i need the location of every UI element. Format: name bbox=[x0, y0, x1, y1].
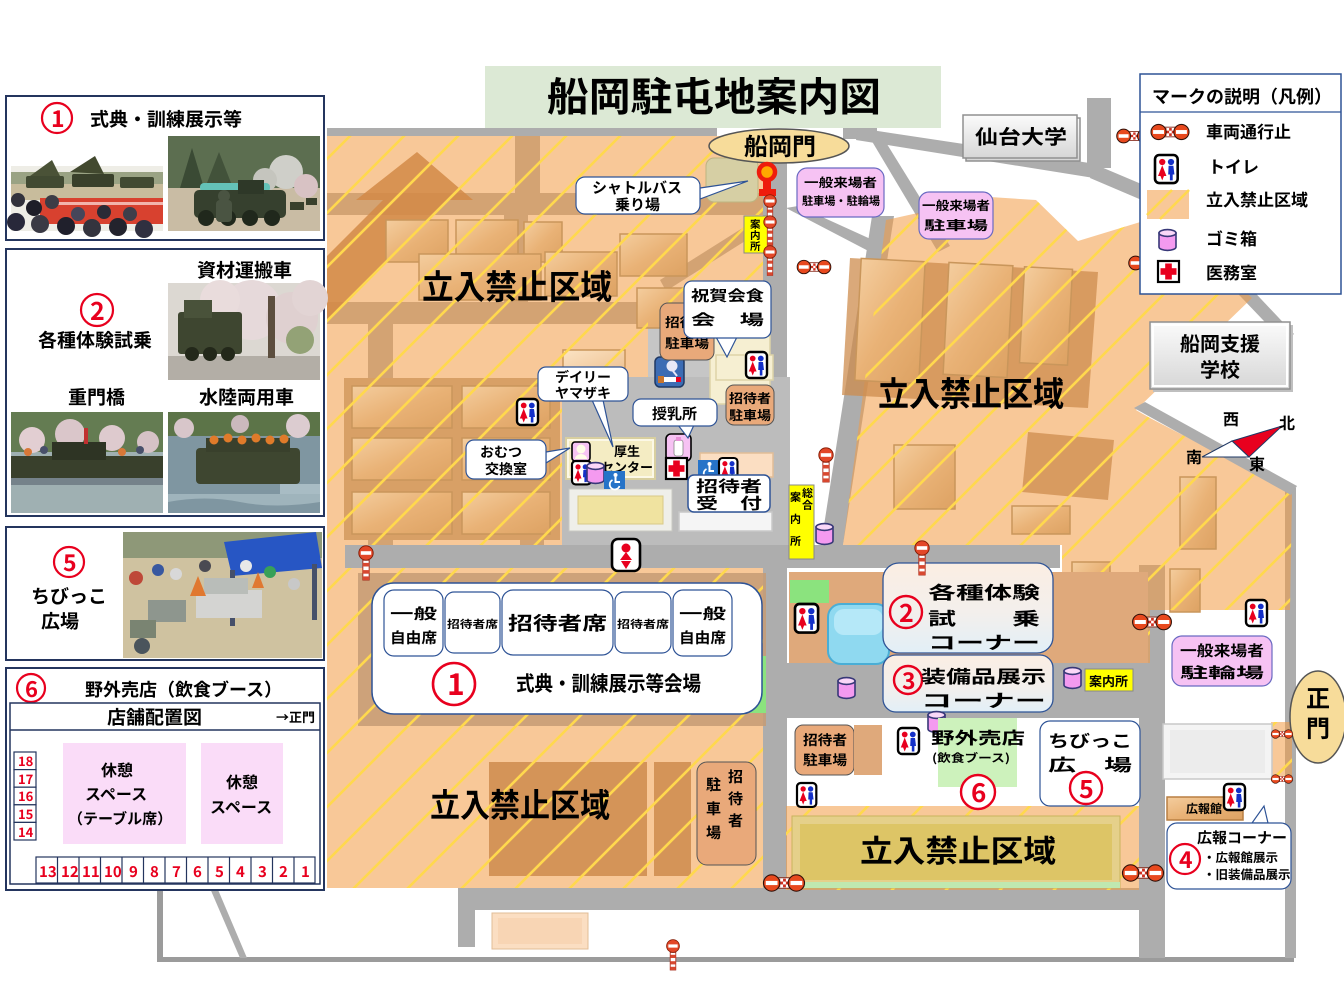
svg-text:15: 15 bbox=[18, 804, 33, 823]
svg-text:装備品展示: 装備品展示 bbox=[921, 663, 1046, 689]
svg-text:仙台大学: 仙台大学 bbox=[975, 121, 1067, 150]
svg-text:式典・訓練展示等: 式典・訓練展示等 bbox=[90, 105, 242, 132]
svg-text:2: 2 bbox=[90, 292, 105, 328]
svg-text:（テーブル席）: （テーブル席） bbox=[68, 808, 172, 829]
svg-text:自由席: 自由席 bbox=[679, 627, 726, 648]
svg-text:学校: 学校 bbox=[1200, 354, 1240, 383]
svg-text:休憩: 休憩 bbox=[101, 757, 133, 781]
svg-text:5: 5 bbox=[1079, 770, 1094, 806]
svg-text:立入禁止区域: 立入禁止区域 bbox=[422, 260, 612, 309]
svg-text:船岡門: 船岡門 bbox=[744, 127, 816, 162]
svg-text:北: 北 bbox=[1279, 410, 1295, 434]
svg-text:招待者席: 招待者席 bbox=[447, 616, 498, 632]
svg-text:スペース: スペース bbox=[85, 781, 147, 805]
svg-text:5: 5 bbox=[63, 544, 77, 578]
svg-text:広報コーナー: 広報コーナー bbox=[1197, 827, 1287, 848]
svg-text:案: 案 bbox=[790, 489, 801, 505]
svg-text:休憩: 休憩 bbox=[226, 769, 258, 793]
svg-text:マークの説明（凡例）: マークの説明（凡例） bbox=[1152, 83, 1332, 109]
svg-text:招待者: 招待者 bbox=[803, 730, 847, 750]
svg-text:2: 2 bbox=[279, 861, 288, 882]
svg-text:10: 10 bbox=[104, 861, 122, 882]
svg-text:野外売店（飲食ブース）: 野外売店（飲食ブース） bbox=[85, 676, 282, 702]
svg-text:各種体験試乗: 各種体験試乗 bbox=[38, 326, 152, 353]
svg-text:医務室: 医務室 bbox=[1206, 259, 1257, 284]
svg-text:駐: 駐 bbox=[706, 774, 721, 795]
svg-text:4: 4 bbox=[236, 861, 245, 882]
svg-text:コーナー: コーナー bbox=[921, 687, 1046, 713]
svg-text:ヤマザキ: ヤマザキ bbox=[555, 383, 611, 403]
svg-text:駐輪場: 駐輪場 bbox=[1180, 662, 1264, 683]
svg-text:立入禁止区域: 立入禁止区域 bbox=[878, 367, 1064, 416]
svg-text:者: 者 bbox=[728, 810, 743, 831]
svg-text:待: 待 bbox=[728, 788, 743, 809]
svg-text:合: 合 bbox=[802, 497, 813, 513]
svg-text:6: 6 bbox=[971, 773, 986, 810]
svg-text:一般来場者: 一般来場者 bbox=[1180, 640, 1264, 661]
svg-text:西: 西 bbox=[1223, 406, 1239, 430]
svg-text:式典・訓練展示等会場: 式典・訓練展示等会場 bbox=[516, 668, 701, 698]
svg-text:立入禁止区域: 立入禁止区域 bbox=[430, 779, 610, 827]
svg-text:自由席: 自由席 bbox=[390, 627, 437, 648]
svg-text:・旧装備品展示: ・旧装備品展示 bbox=[1203, 864, 1291, 883]
svg-text:授乳所: 授乳所 bbox=[652, 403, 697, 424]
svg-text:広報館: 広報館 bbox=[1186, 800, 1222, 817]
svg-text:コーナー: コーナー bbox=[928, 629, 1040, 655]
svg-text:受 付: 受 付 bbox=[696, 490, 762, 514]
svg-text:→正門: →正門 bbox=[276, 707, 315, 726]
svg-text:立入禁止区域: 立入禁止区域 bbox=[1206, 186, 1308, 211]
svg-text:トイレ: トイレ bbox=[1208, 153, 1259, 178]
svg-text:2: 2 bbox=[899, 594, 914, 630]
svg-text:重門橋: 重門橋 bbox=[68, 383, 125, 410]
svg-text:14: 14 bbox=[18, 822, 34, 841]
svg-text:所: 所 bbox=[750, 239, 761, 254]
svg-text:場: 場 bbox=[706, 822, 721, 843]
svg-text:車: 車 bbox=[706, 798, 721, 819]
svg-text:16: 16 bbox=[18, 786, 34, 805]
svg-text:資材運搬車: 資材運搬車 bbox=[197, 256, 292, 283]
svg-text:広場: 広場 bbox=[41, 607, 79, 634]
svg-text:店舗配置図: 店舗配置図 bbox=[107, 703, 202, 730]
svg-text:東: 東 bbox=[1249, 451, 1265, 475]
svg-text:4: 4 bbox=[1179, 841, 1193, 875]
svg-text:5: 5 bbox=[215, 861, 224, 882]
svg-text:立入禁止区域: 立入禁止区域 bbox=[860, 826, 1056, 871]
svg-text:ゴミ箱: ゴミ箱 bbox=[1206, 225, 1257, 250]
svg-text:水陸両用車: 水陸両用車 bbox=[199, 383, 294, 410]
svg-text:案内所: 案内所 bbox=[1089, 671, 1128, 690]
svg-text:1: 1 bbox=[301, 861, 310, 882]
svg-text:(飲食ブース): (飲食ブース) bbox=[932, 750, 1010, 766]
svg-text:一般来場者: 一般来場者 bbox=[804, 172, 877, 191]
svg-text:南: 南 bbox=[1186, 444, 1202, 468]
svg-text:ちびっこ: ちびっこ bbox=[31, 582, 107, 609]
svg-text:駐車場・駐輪場: 駐車場・駐輪場 bbox=[802, 193, 880, 209]
svg-text:6: 6 bbox=[193, 861, 202, 882]
svg-text:駐車場: 駐車場 bbox=[924, 215, 988, 234]
svg-text:招待者席: 招待者席 bbox=[508, 609, 607, 636]
svg-text:船岡支援: 船岡支援 bbox=[1180, 328, 1260, 357]
svg-text:野外売店: 野外売店 bbox=[931, 724, 1025, 749]
svg-text:交換室: 交換室 bbox=[485, 459, 527, 479]
svg-text:12: 12 bbox=[61, 861, 79, 882]
svg-text:一般来場者: 一般来場者 bbox=[922, 195, 990, 214]
svg-text:3: 3 bbox=[902, 662, 916, 696]
svg-text:乗り場: 乗り場 bbox=[615, 194, 660, 215]
svg-text:内: 内 bbox=[790, 511, 801, 527]
svg-text:11: 11 bbox=[82, 861, 100, 882]
svg-text:祝賀会食: 祝賀会食 bbox=[691, 285, 764, 306]
svg-text:18: 18 bbox=[18, 751, 34, 770]
svg-text:招待者席: 招待者席 bbox=[617, 616, 669, 632]
svg-text:1: 1 bbox=[447, 660, 465, 704]
svg-text:試 乗: 試 乗 bbox=[928, 605, 1040, 631]
svg-text:駐車場: 駐車場 bbox=[803, 750, 847, 770]
svg-text:招: 招 bbox=[728, 766, 743, 787]
svg-text:各種体験: 各種体験 bbox=[928, 579, 1040, 605]
svg-text:車両通行止: 車両通行止 bbox=[1206, 118, 1291, 143]
svg-text:一般: 一般 bbox=[390, 603, 437, 624]
svg-text:一般: 一般 bbox=[679, 603, 726, 624]
svg-text:1: 1 bbox=[51, 100, 65, 134]
svg-text:船岡駐屯地案内図: 船岡駐屯地案内図 bbox=[547, 65, 881, 123]
svg-text:3: 3 bbox=[258, 861, 267, 882]
svg-text:8: 8 bbox=[150, 861, 159, 882]
svg-text:門: 門 bbox=[1306, 709, 1330, 744]
svg-text:会 場: 会 場 bbox=[691, 309, 764, 330]
svg-text:7: 7 bbox=[172, 861, 181, 882]
svg-text:スペース: スペース bbox=[210, 794, 272, 818]
svg-text:所: 所 bbox=[790, 533, 801, 549]
svg-text:9: 9 bbox=[129, 861, 138, 882]
svg-text:駐車場: 駐車場 bbox=[729, 405, 771, 424]
svg-text:ちびっこ: ちびっこ bbox=[1048, 727, 1132, 752]
svg-text:13: 13 bbox=[39, 861, 57, 882]
svg-text:6: 6 bbox=[25, 672, 38, 704]
